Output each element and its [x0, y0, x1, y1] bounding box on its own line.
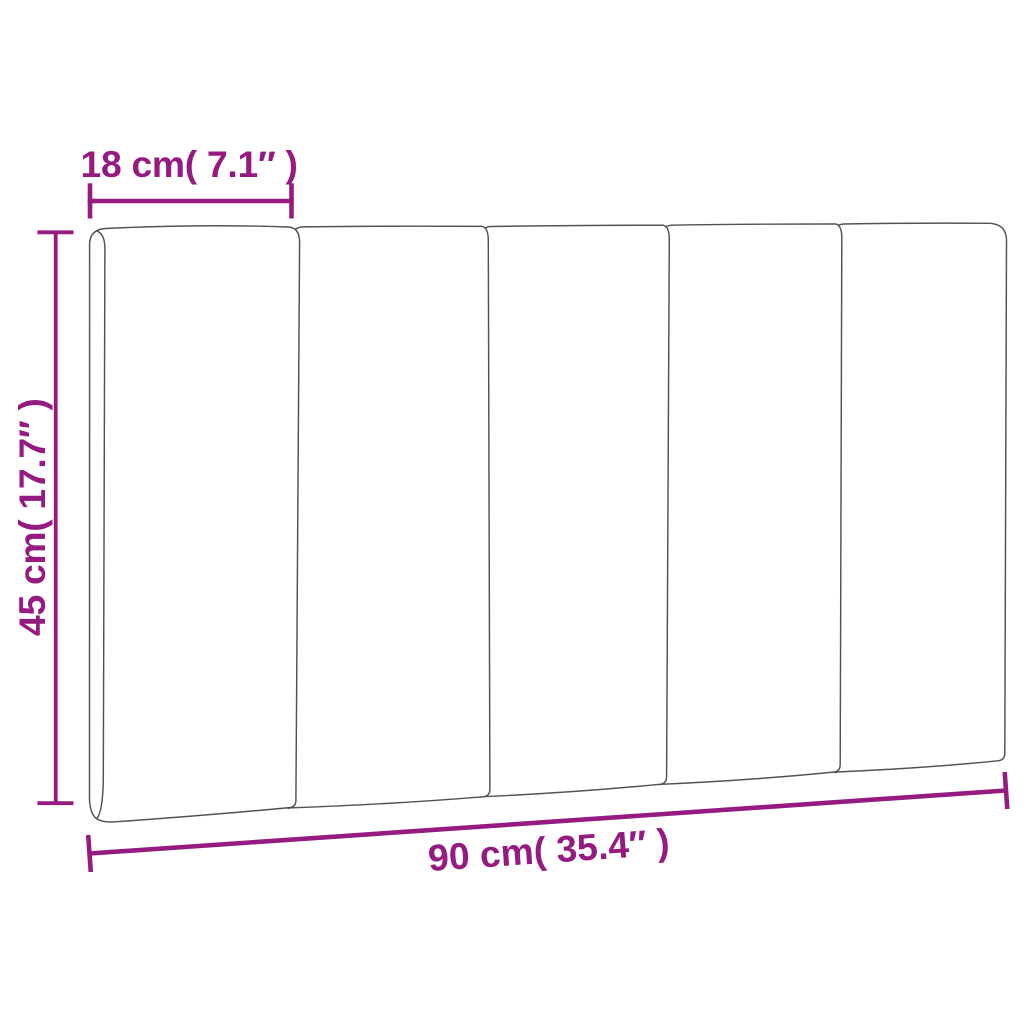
- svg-text:18 cm( 7.1″ ): 18 cm( 7.1″ ): [81, 143, 298, 185]
- svg-text:45 cm( 17.7″ ): 45 cm( 17.7″ ): [11, 398, 53, 636]
